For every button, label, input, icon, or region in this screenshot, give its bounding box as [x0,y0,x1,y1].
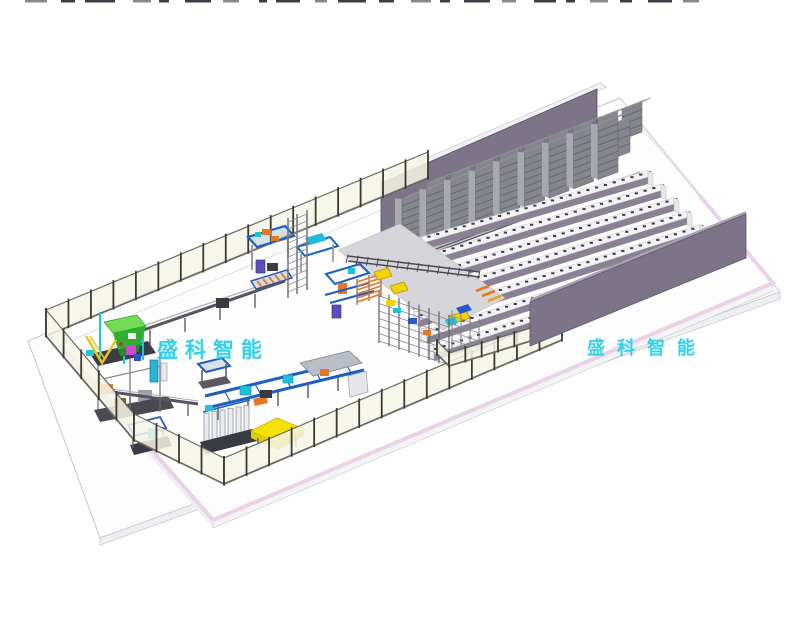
lane-chain-tick [463,225,466,227]
lane-chain-tick [470,317,473,319]
lane-chain-tick [631,211,634,213]
lane-chain-tick [501,251,504,253]
lane-chain-tick [665,201,668,203]
lane-chain-tick [639,209,642,211]
lane-chain-tick [562,232,565,234]
lane-chain-tick [586,189,589,191]
lane-chain-tick [591,205,594,207]
cropped-structure-dash [133,0,151,3]
lane-chain-tick [513,229,516,231]
lane-chain-tick [656,239,659,241]
lane-chain-tick [488,311,491,313]
cropped-structure-dash [276,0,300,3]
lane-chain-tick [563,250,566,252]
lane-chain-tick [652,187,655,189]
lane-chain-tick [544,238,547,240]
lane-chain-tick [478,239,481,241]
cropped-structure-dash [85,0,115,3]
lane-chain-tick [510,248,513,250]
lane-chain-tick [630,247,633,249]
lane-chain-tick [451,247,454,249]
cropped-structure-dash [379,0,394,3]
lane-chain-tick [574,211,577,213]
lane-chain-tick [539,221,542,223]
cropped-structure-dash [223,0,239,3]
lane-chain-tick [445,230,448,232]
lane-chain-tick [616,234,619,236]
lane-chain-tick [560,197,563,199]
lane-chain-tick [553,235,556,237]
stored-item-yellow [386,300,395,306]
lane-chain-tick [503,325,506,327]
conveyor-carrier-box [216,298,229,308]
lane-chain-tick [484,275,487,277]
dark-module [260,390,272,398]
lane-chain-tick [572,247,575,249]
lane-chain-tick [505,306,508,308]
cylinder-slat [204,413,209,443]
lane-chain-tick [534,278,537,280]
purple-cabinet [332,305,341,318]
lane-chain-tick [528,261,531,263]
lane-chain-tick [436,233,439,235]
lane-chain-tick [674,233,677,235]
lane-chain-tick [521,226,524,228]
lane-chain-tick [599,239,602,241]
cropped-structure-dash [590,0,608,3]
watermark-right: 盛科智能 [587,337,707,359]
lane-chain-tick [551,272,554,274]
lane-chain-tick [595,187,598,189]
white-tank [161,363,167,381]
lane-chain-tick [669,217,672,219]
lane-chain-tick [600,203,603,205]
cyan-module [205,405,213,411]
lane-chain-tick [604,256,607,258]
cyan-module [86,350,94,356]
lane-chain-tick [520,320,523,322]
lane-chain-tick [625,231,628,233]
lane-chain-tick [665,236,668,238]
lane-chain-tick [530,224,533,226]
lane-chain-tick [554,253,557,255]
lane-chain-tick [542,202,545,204]
lane-chain-tick [582,208,585,210]
lane-chain-tick [546,256,549,258]
rack-tower-side [493,161,500,217]
lane-chain-tick [635,192,638,194]
lane-right-end [674,198,679,214]
cropped-structure-dash [185,0,211,3]
cropped-structure-dash [259,0,267,3]
lane-chain-tick [590,242,593,244]
lane-chain-tick [522,300,525,302]
lane-chain-tick [586,261,589,263]
lane-chain-tick [648,242,651,244]
lane-chain-tick [596,222,599,224]
lane-chain-tick [652,223,655,225]
lane-chain-tick [501,269,504,271]
rack-tower-side [469,170,476,226]
lane-chain-tick [508,286,511,288]
lane-chain-tick [556,216,559,218]
lane-chain-tick [533,205,536,207]
lane-chain-tick [496,309,499,311]
cyan-module [348,268,355,274]
cylinder-slat [212,412,217,442]
cropped-structure-dash [440,0,450,3]
lane-chain-tick [518,246,521,248]
lane-chain-tick [613,181,616,183]
lane-chain-tick [460,245,463,247]
rack-tower-side [591,124,598,180]
lane-chain-tick [657,203,660,205]
cropped-top-structures [25,0,699,3]
lane-chain-tick [644,190,647,192]
white-module [128,333,136,339]
lane-chain-tick [634,228,637,230]
lane-chain-tick [479,314,482,316]
lane-chain-tick [504,232,507,234]
lane-chain-tick [543,275,546,277]
cropped-structure-dash [620,0,632,3]
robot-arm-orange [271,236,279,241]
lane-chain-tick [565,213,568,215]
stored-item-blue [408,318,417,324]
dark-module [267,263,278,271]
lane-chain-tick [639,244,642,246]
lane-chain-tick [486,237,489,239]
lane-chain-tick [525,281,528,283]
lane-chain-tick [617,198,620,200]
purple-cabinet [256,260,265,273]
lane-chain-tick [560,270,563,272]
lane-chain-tick [510,267,513,269]
lane-right-end [687,211,692,227]
rack-tower-side [444,180,451,236]
cropped-structure-dash [411,0,431,3]
lane-chain-tick [626,195,629,197]
blue-module [134,354,141,361]
stored-item-orange [423,330,431,335]
cad-rendering-canvas: 盛科智能 盛科智能 [0,0,800,618]
lane-chain-tick [536,240,539,242]
cyan-tank [150,360,158,382]
cropped-structure-dash [464,0,490,3]
cyan-module [283,375,293,383]
lane-chain-tick [588,224,591,226]
lane-chain-tick [678,214,681,216]
cropped-structure-dash [534,0,556,3]
lane-chain-tick [436,328,439,330]
magenta-module [126,345,136,355]
cropped-structure-dash [25,0,47,3]
lane-chain-tick [613,217,616,219]
robot-arm-orange [262,229,271,235]
cyan-module [255,232,261,237]
cropped-structure-dash [566,0,575,3]
lane-chain-tick [493,272,496,274]
lane-chain-tick [621,250,624,252]
red-indicator [119,342,123,346]
lane-chain-tick [639,174,642,176]
lane-chain-tick [516,283,519,285]
lane-chain-tick [486,331,489,333]
lane-chain-tick [604,184,607,186]
lane-chain-tick [551,199,554,201]
factory-layout-scene: 盛科智能 盛科智能 [0,0,800,618]
lane-chain-tick [516,210,519,212]
cropped-structure-dash [159,0,169,3]
lane-chain-tick [537,258,540,260]
lane-chain-tick [467,261,470,263]
lane-chain-tick [578,264,581,266]
lane-chain-tick [427,236,430,238]
lane-chain-tick [622,179,625,181]
rack-tower-side [567,133,574,189]
lane-right-end [661,184,666,200]
cropped-structure-dash [502,0,516,3]
lane-chain-tick [514,303,517,305]
white-cabinet [348,371,368,397]
cropped-structure-dash [61,0,75,3]
cropped-structure-dash [683,0,699,3]
lane-chain-tick [630,176,633,178]
rack-tower-side [542,142,549,198]
lane-chain-tick [691,228,694,230]
lane-chain-tick [484,256,487,258]
lane-chain-tick [569,194,572,196]
orange-module [320,369,329,376]
cyan-module [240,386,251,395]
lane-chain-tick [475,259,478,261]
lane-chain-tick [595,258,598,260]
lane-chain-tick [519,264,522,266]
lane-chain-tick [570,230,573,232]
lane-chain-tick [527,243,530,245]
lane-chain-tick [494,328,497,330]
lane-chain-tick [547,219,550,221]
lane-chain-tick [660,220,663,222]
lane-chain-tick [524,207,527,209]
lane-chain-tick [683,231,686,233]
lane-chain-tick [605,219,608,221]
lane-chain-tick [454,228,457,230]
lane-chain-tick [498,215,501,217]
cropped-structure-dash [315,0,327,3]
cropped-structure-dash [338,0,366,3]
lane-chain-tick [579,227,582,229]
lane-chain-tick [569,267,572,269]
lane-chain-tick [643,225,646,227]
lane-chain-tick [492,254,495,256]
lane-chain-tick [609,200,612,202]
lane-chain-tick [613,253,616,255]
lane-chain-tick [495,234,498,236]
stored-item-cyan [393,308,401,313]
cylinder-slat [220,410,225,440]
rack-tower-side [518,152,525,208]
lane-chain-tick [622,214,625,216]
lane-chain-tick [507,212,510,214]
watermark-left: 盛科智能 [157,338,269,362]
lane-right-end [648,171,653,187]
lane-chain-tick [581,245,584,247]
lane-chain-tick [471,223,474,225]
lane-chain-tick [577,192,580,194]
lane-chain-tick [511,323,514,325]
lane-chain-tick [469,242,472,244]
lane-chain-tick [607,236,610,238]
lane-chain-tick [489,218,492,220]
lane-chain-tick [480,220,483,222]
cropped-structure-dash [648,0,672,3]
lane-chain-tick [443,250,446,252]
lane-chain-tick [648,206,651,208]
lane-chain-tick [499,289,502,291]
